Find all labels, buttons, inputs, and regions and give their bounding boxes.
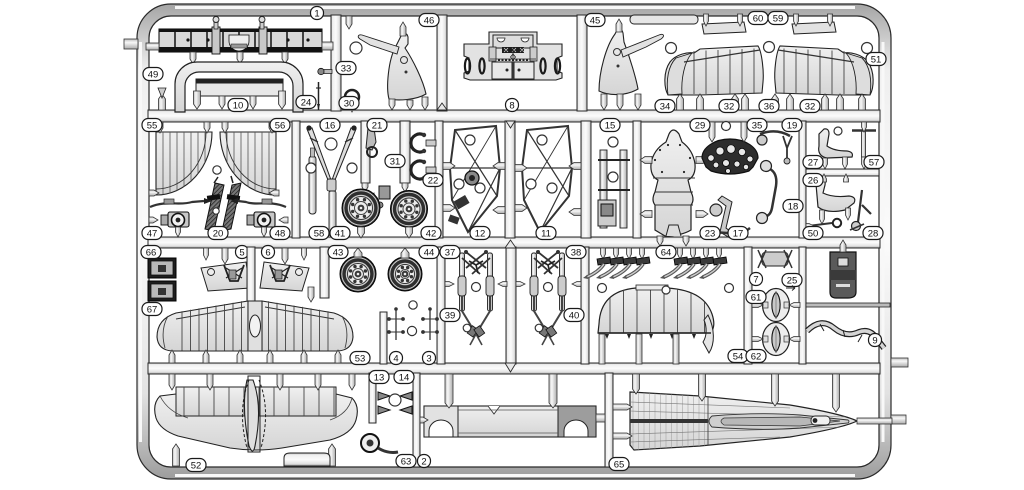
svg-text:26: 26 — [808, 175, 819, 186]
svg-text:48: 48 — [275, 228, 286, 239]
svg-text:12: 12 — [475, 228, 486, 239]
svg-text:27: 27 — [808, 157, 819, 168]
svg-text:47: 47 — [147, 228, 158, 239]
svg-text:10: 10 — [233, 100, 244, 111]
svg-text:6: 6 — [265, 247, 270, 258]
svg-text:17: 17 — [733, 228, 744, 239]
svg-text:20: 20 — [213, 228, 224, 239]
svg-text:2: 2 — [421, 456, 426, 467]
svg-text:50: 50 — [808, 228, 819, 239]
svg-text:19: 19 — [787, 120, 798, 131]
svg-text:43: 43 — [333, 247, 344, 258]
svg-text:33: 33 — [341, 63, 352, 74]
svg-text:32: 32 — [724, 101, 735, 112]
svg-text:38: 38 — [571, 247, 582, 258]
svg-text:9: 9 — [872, 335, 877, 346]
svg-text:61: 61 — [751, 292, 762, 303]
svg-text:13: 13 — [374, 372, 385, 383]
svg-text:29: 29 — [695, 120, 706, 131]
svg-text:21: 21 — [372, 120, 383, 131]
svg-text:41: 41 — [335, 228, 346, 239]
svg-text:54: 54 — [733, 351, 744, 362]
svg-text:1: 1 — [314, 8, 319, 19]
svg-text:4: 4 — [393, 353, 398, 364]
svg-text:53: 53 — [355, 353, 366, 364]
svg-text:15: 15 — [605, 120, 616, 131]
svg-text:22: 22 — [428, 175, 439, 186]
svg-text:28: 28 — [868, 228, 879, 239]
svg-text:64: 64 — [661, 247, 672, 258]
svg-text:18: 18 — [788, 201, 799, 212]
svg-text:59: 59 — [773, 13, 784, 24]
svg-text:16: 16 — [325, 120, 336, 131]
svg-text:37: 37 — [445, 247, 456, 258]
svg-text:65: 65 — [614, 459, 625, 470]
svg-text:11: 11 — [541, 228, 551, 239]
svg-text:40: 40 — [569, 310, 580, 321]
svg-text:39: 39 — [445, 310, 456, 321]
svg-text:30: 30 — [344, 98, 355, 109]
svg-text:34: 34 — [660, 101, 671, 112]
svg-text:44: 44 — [424, 247, 435, 258]
svg-text:58: 58 — [314, 228, 325, 239]
svg-text:46: 46 — [424, 15, 435, 26]
svg-text:36: 36 — [764, 101, 775, 112]
svg-text:49: 49 — [148, 69, 159, 80]
svg-text:42: 42 — [426, 228, 437, 239]
svg-text:52: 52 — [191, 460, 202, 471]
svg-text:55: 55 — [147, 120, 158, 131]
svg-text:56: 56 — [275, 120, 286, 131]
svg-text:31: 31 — [390, 156, 401, 167]
svg-text:3: 3 — [426, 353, 431, 364]
svg-text:7: 7 — [753, 274, 758, 285]
svg-text:45: 45 — [590, 15, 601, 26]
svg-text:63: 63 — [401, 456, 412, 467]
svg-text:67: 67 — [147, 304, 158, 315]
svg-text:66: 66 — [146, 247, 157, 258]
svg-text:5: 5 — [239, 247, 244, 258]
svg-text:51: 51 — [871, 54, 882, 65]
svg-text:25: 25 — [787, 275, 798, 286]
svg-text:32: 32 — [805, 101, 816, 112]
svg-text:24: 24 — [301, 97, 312, 108]
svg-text:14: 14 — [399, 372, 410, 383]
svg-text:35: 35 — [752, 120, 763, 131]
svg-text:62: 62 — [751, 351, 762, 362]
svg-text:60: 60 — [753, 13, 764, 24]
svg-text:8: 8 — [509, 100, 514, 111]
svg-text:23: 23 — [705, 228, 716, 239]
svg-text:57: 57 — [869, 157, 880, 168]
